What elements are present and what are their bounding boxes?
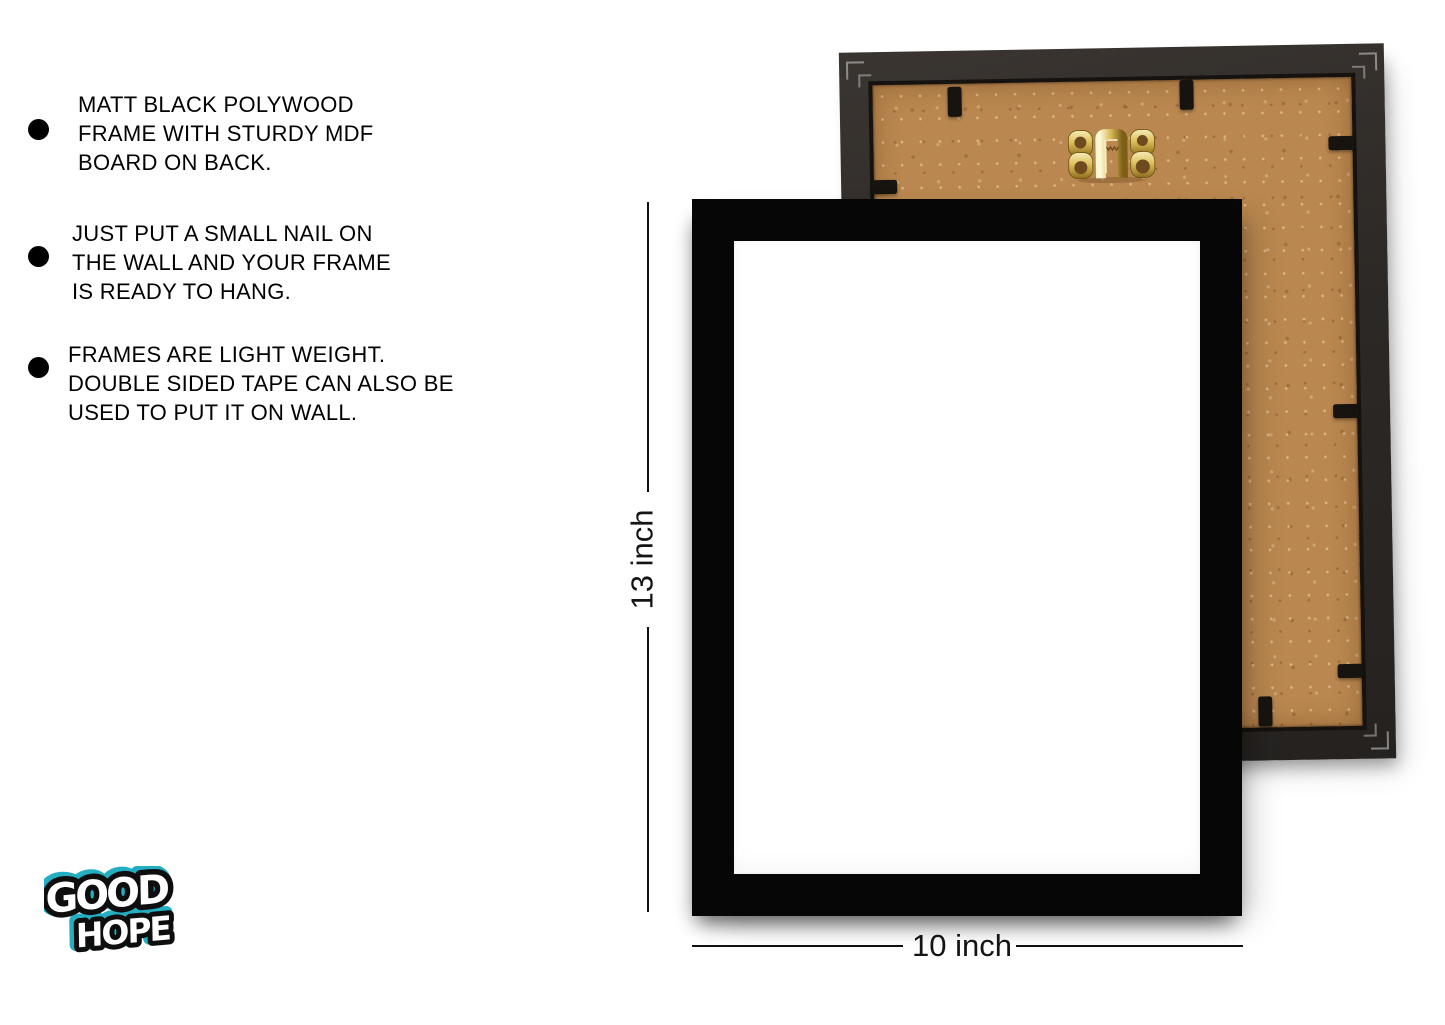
height-dimension-line-top	[647, 202, 649, 492]
width-dimension-line-right	[1016, 945, 1243, 947]
frame-front-view	[692, 199, 1242, 916]
bullet-dot	[28, 246, 49, 267]
hanger-tongue	[1100, 134, 1123, 178]
corner-vnail-mark	[858, 74, 871, 87]
width-dimension-label: 10 inch	[900, 929, 1024, 963]
retainer-clip	[1328, 136, 1354, 150]
feature-text-line: FRAMES ARE LIGHT WEIGHT.	[68, 340, 454, 369]
corner-vnail-mark	[1364, 724, 1377, 737]
feature-text-line: FRAME WITH STURDY MDF	[78, 119, 374, 148]
height-dimension-line-bottom	[647, 627, 649, 912]
retainer-clip	[1333, 404, 1359, 418]
good-hope-logo: GOOD HOPE GOOD HOPE	[44, 866, 186, 962]
frame-front-window	[734, 241, 1200, 874]
frame-product-banner: MATT BLACK POLYWOOD FRAME WITH STURDY MD…	[0, 0, 1445, 1025]
logo-word-hope: HOPE	[76, 908, 171, 955]
retainer-clip	[1258, 696, 1273, 726]
feature-block-hanging: JUST PUT A SMALL NAIL ON THE WALL AND YO…	[72, 219, 391, 306]
bullet-dot	[28, 357, 49, 378]
height-dimension-label: 13 inch	[624, 495, 661, 625]
feature-text-line: IS READY TO HANG.	[72, 277, 391, 306]
hanger-right-plate	[1130, 129, 1155, 177]
feature-text-line: THE WALL AND YOUR FRAME	[72, 248, 391, 277]
retainer-clip	[871, 180, 897, 194]
feature-block-material: MATT BLACK POLYWOOD FRAME WITH STURDY MD…	[78, 90, 374, 177]
retainer-clip	[1179, 80, 1194, 110]
hanging-hook	[1063, 126, 1160, 184]
bullet-dot	[28, 119, 49, 140]
feature-text-line: JUST PUT A SMALL NAIL ON	[72, 219, 391, 248]
feature-text-line: USED TO PUT IT ON WALL.	[68, 398, 454, 427]
retainer-clip	[1338, 664, 1364, 678]
corner-vnail-mark	[1352, 66, 1365, 79]
hanger-left-plate	[1068, 130, 1093, 178]
feature-text-line: DOUBLE SIDED TAPE CAN ALSO BE	[68, 369, 454, 398]
feature-text-line: MATT BLACK POLYWOOD	[78, 90, 374, 119]
retainer-clip	[947, 87, 962, 117]
feature-text-line: BOARD ON BACK.	[78, 148, 374, 177]
feature-block-weight: FRAMES ARE LIGHT WEIGHT. DOUBLE SIDED TA…	[68, 340, 454, 427]
width-dimension-line-left	[692, 945, 903, 947]
